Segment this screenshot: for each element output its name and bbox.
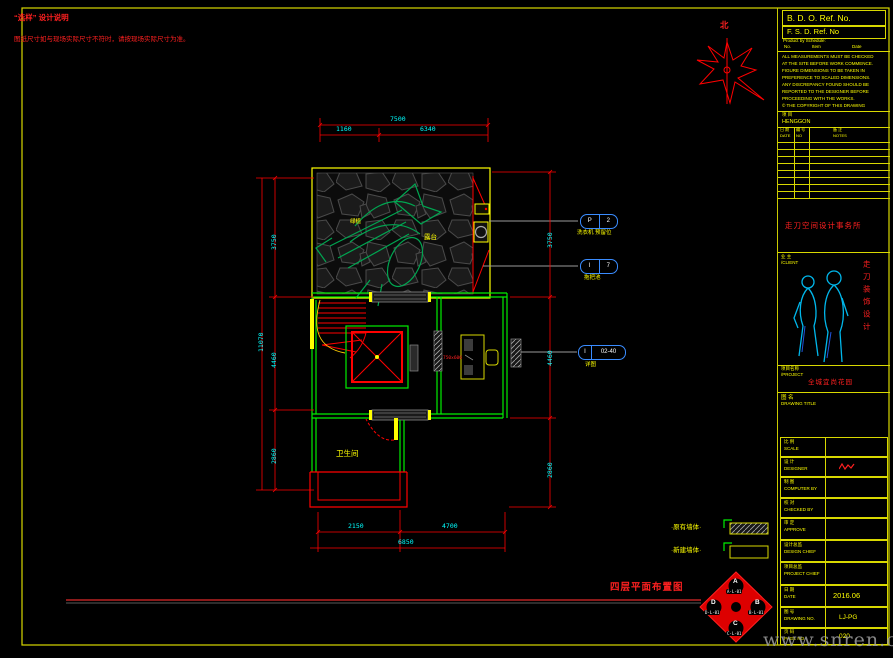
footer-drawing-title: 四层平面布置图 (610, 583, 684, 593)
col-date: Date (852, 45, 862, 50)
row-checked-by: 校 对 CHECKED BY (780, 498, 888, 518)
north-label: 北 (720, 21, 729, 30)
note-line: ANY DISCREPANCY FOUND SHOULD BE (782, 83, 869, 88)
note-line: ALL MEASUREMENTS MUST BE CHECKED (782, 55, 874, 60)
designer-signature (839, 463, 855, 471)
row-date-cn: 日 期 (784, 588, 794, 593)
pname-value: 全城宜尚花园 (808, 379, 853, 386)
row-approve-cn: 审 定 (784, 521, 794, 526)
row-computer-cn: 制 图 (784, 480, 794, 485)
row-drawing-no: 图 号 DRAWING NO. LJ-PG (780, 607, 888, 628)
log-row-line (778, 170, 890, 171)
keyplan-b-code: B-L-01 (748, 610, 764, 615)
note-line: © THE COPYRIGHT OF THIS DRAWING (782, 104, 865, 109)
row-project-chief: 项目总监 PROJECT CHIEF (780, 562, 888, 585)
row-designer-en: DESIGNER (784, 467, 808, 472)
callout-2-left: I (581, 261, 599, 272)
sheet-border (22, 8, 889, 645)
dim-top-seg2: 6340 (420, 126, 436, 133)
desk-note: 750x600 (443, 357, 462, 362)
dim-right-seg3: 2860 (547, 462, 554, 478)
row-divider (825, 519, 826, 539)
callout-1-label: 洗衣机 预留位 (577, 230, 612, 236)
footer-underline (66, 600, 701, 603)
row-computer-en: COMPUTER BY (784, 487, 817, 492)
log-row-line (778, 163, 890, 164)
brand-vertical-text: 走刀装饰设计 (862, 260, 870, 335)
project-value: HENGGON (782, 119, 810, 125)
log-row-line (778, 149, 890, 150)
row-checked-cn: 校 对 (784, 501, 794, 506)
cad-sheet: “选样” 设计说明 图纸尺寸如与现场实际尺寸不符时，请按现场实际尺寸为准。 北 … (0, 0, 893, 658)
dim-right-seg2: 4460 (547, 350, 554, 366)
dim-bottom-seg2: 4700 (442, 523, 458, 530)
row-scale-cn: 比 例 (784, 440, 794, 445)
callout-3-left: I (579, 347, 591, 358)
fsd-ref-label: F. S. D. Ref. No (787, 28, 839, 36)
log-notes-cn: 备 注 (833, 128, 842, 132)
log-no-en: NO (796, 134, 802, 138)
note-line: PREFERENCE TO SCALED DIMENSIONS. (782, 76, 870, 81)
row-divider (825, 541, 826, 561)
row-design-chief: 设计总监 DESIGN CHIEF (780, 540, 888, 562)
row-divider (825, 458, 826, 476)
row-drawing-no-value: LJ-PG (839, 614, 857, 621)
tb-divider (778, 252, 890, 253)
callout-2-right: 7 (600, 261, 618, 272)
row-drawing-no-en: DRAWING NO. (784, 617, 815, 622)
door-window-blocks (310, 292, 521, 420)
middle-walls (312, 293, 507, 418)
row-approve: 审 定 APPROVE (780, 518, 888, 540)
callout-1-left: P (581, 216, 599, 227)
company-name: 走刀空间设计事务所 (785, 222, 862, 230)
staircase (317, 300, 366, 358)
row-drawing-no-cn: 图 号 (784, 610, 794, 615)
row-divider (825, 438, 826, 456)
callout-3-right: 02-40 (592, 347, 625, 358)
col-item: Item (812, 45, 821, 50)
keyplan-c-code: C-L-01 (726, 631, 742, 636)
callout-3-label: 详图 (585, 362, 596, 368)
leader-lines (483, 221, 578, 352)
row-divider (825, 608, 826, 627)
desk (461, 335, 498, 379)
legend-swatches (724, 520, 768, 558)
row-divider (825, 586, 826, 606)
keyplan-a-code: A-L-01 (726, 589, 742, 594)
log-row-line (778, 142, 890, 143)
row-designer: 设 计 DESIGNER (780, 457, 888, 477)
keyplan-d-code: D-L-01 (704, 610, 720, 615)
keyplan-c: C (733, 620, 738, 627)
couple-silhouette-logo (786, 268, 858, 364)
spec-note-title: “选样” 设计说明 (14, 14, 69, 22)
dim-left-seg3: 2860 (271, 448, 278, 464)
terrace-label: 露台 (424, 234, 437, 241)
pname-label-en: /PROJECT (781, 373, 803, 378)
keyplan-a: A (733, 578, 738, 585)
plant-label: 绿植 (350, 219, 361, 225)
row-approve-en: APPROVE (784, 528, 806, 533)
bottom-room (310, 418, 407, 507)
project-label: 项 目 (782, 113, 792, 118)
note-line: PROCEEDING WITH THE WORKS. (782, 97, 855, 102)
row-checked-en: CHECKED BY (784, 508, 813, 513)
log-no-cn: 编 号 (796, 128, 805, 132)
elevator (346, 326, 408, 388)
col-no: No. (784, 45, 791, 50)
log-row-line (778, 156, 890, 157)
note-line: FIGURE DIMENSIONS TO BE TAKEN IN (782, 69, 865, 74)
title-block: B. D. O. Ref. No. F. S. D. Ref. No Produ… (777, 8, 890, 645)
client-label-en: /CLIENT (781, 261, 798, 266)
terrace (312, 168, 490, 298)
legend-item-1: ·原有墙体· (671, 524, 701, 531)
tb-divider (778, 111, 890, 112)
row-scale-en: SCALE (784, 447, 799, 452)
bathroom-label: 卫生间 (336, 450, 359, 458)
row-computer-by: 制 图 COMPUTER BY (780, 477, 888, 498)
tb-divider (778, 51, 890, 52)
log-notes-en: NOTES (833, 134, 847, 138)
row-designer-cn: 设 计 (784, 460, 794, 465)
dim-top-seg1: 1160 (336, 126, 352, 133)
row-design-chief-cn: 设计总监 (784, 543, 802, 548)
note-line: REPORTED TO THE DESIGNER BEFORE (782, 90, 869, 95)
log-row-line (778, 191, 890, 192)
row-date-value: 2016.06 (833, 592, 860, 600)
row-drawing-title-en: DRAWING TITLE (781, 402, 816, 407)
row-divider (825, 563, 826, 584)
legend-item-2: ·新建墙体· (671, 547, 701, 554)
row-divider (825, 478, 826, 497)
dim-left-overall: 11070 (258, 332, 265, 352)
row-date: 日 期 DATE 2016.06 (780, 585, 888, 607)
log-date-en: DATE (780, 134, 790, 138)
row-date-en: DATE (784, 595, 796, 600)
note-line: AT THE SITE BEFORE WORK COMMENCE. (782, 62, 873, 67)
fsd-ref-box: F. S. D. Ref. No (782, 25, 886, 39)
keyplan-b: B (755, 599, 760, 606)
plan-linework (0, 0, 893, 658)
dim-left-seg2: 4460 (271, 352, 278, 368)
callout-2: I 7 (580, 259, 618, 274)
log-row-line (778, 177, 890, 178)
row-divider (825, 499, 826, 517)
dim-left-seg1: 3750 (271, 234, 278, 250)
dim-bottom-overall: 6850 (398, 539, 414, 546)
row-project-chief-cn: 项目总监 (784, 565, 802, 570)
callout-2-label: 拖把池 (584, 275, 601, 281)
callout-3: I 02-40 (578, 345, 626, 360)
callout-1: P 2 (580, 214, 618, 229)
north-arrow-icon (697, 38, 764, 104)
dim-top-overall: 7500 (390, 116, 406, 123)
dim-right-seg1: 3750 (547, 232, 554, 248)
log-row-line (778, 184, 890, 185)
keyplan-d: D (711, 599, 716, 606)
spec-note-body: 图纸尺寸如与现场实际尺寸不符时，请按现场实际尺寸为准。 (14, 36, 190, 43)
bdo-ref-label: B. D. O. Ref. No. (787, 14, 851, 23)
dim-bottom-seg1: 2150 (348, 523, 364, 530)
row-design-chief-en: DESIGN CHIEF (784, 550, 816, 555)
row-project-chief-en: PROJECT CHIEF (784, 572, 820, 577)
tb-divider (778, 392, 890, 393)
row-scale: 比 例 SCALE (780, 437, 888, 457)
watermark: www.snren.com (763, 630, 893, 651)
log-row-line (778, 198, 890, 199)
log-date-cn: 日 期 (780, 128, 789, 132)
callout-1-right: 2 (600, 216, 618, 227)
